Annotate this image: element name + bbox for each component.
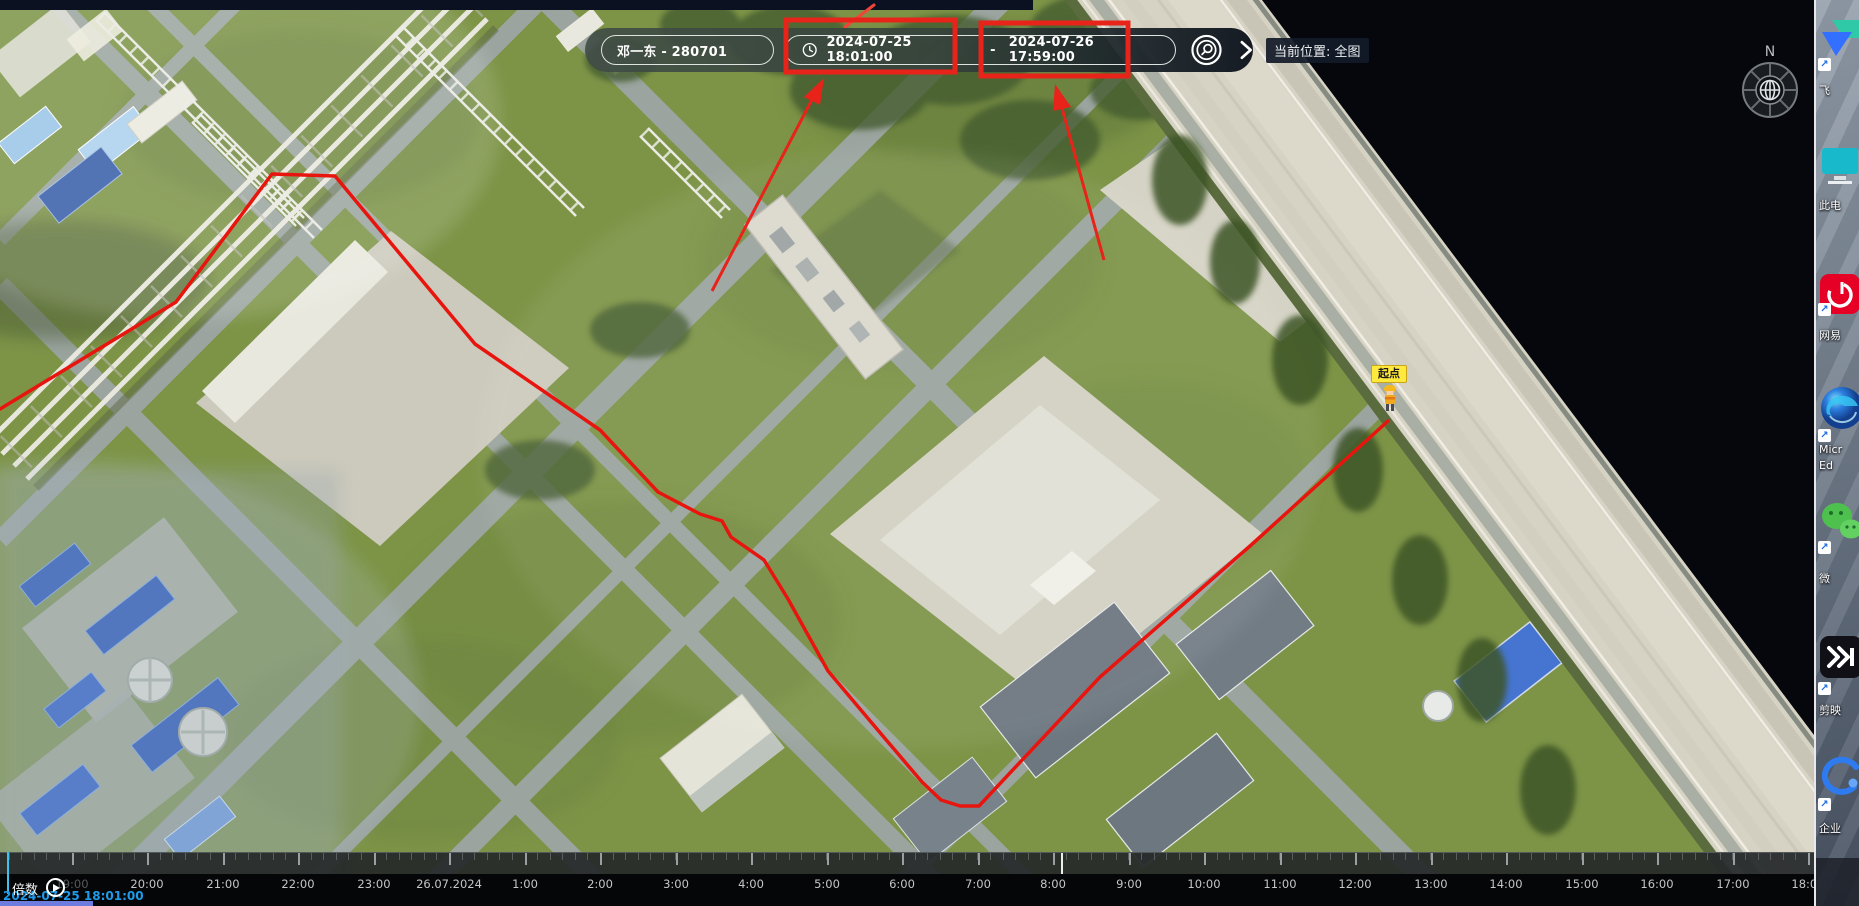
minor-tick xyxy=(1544,853,1545,860)
minor-tick xyxy=(1632,853,1633,860)
minor-tick xyxy=(625,853,626,860)
minor-tick xyxy=(122,853,123,860)
minor-tick xyxy=(915,853,916,860)
search-button[interactable] xyxy=(1190,33,1223,67)
timeline-label: 16:00 xyxy=(1640,877,1673,891)
timeline-label: 2:00 xyxy=(587,877,613,891)
minor-tick xyxy=(1670,853,1671,860)
hour-tick xyxy=(1204,853,1206,865)
minor-tick xyxy=(160,853,161,860)
minor-tick xyxy=(59,853,60,860)
hour-tick xyxy=(1053,853,1055,865)
minor-tick xyxy=(1254,853,1255,860)
minor-tick xyxy=(424,853,425,860)
hour-tick xyxy=(1733,853,1735,865)
minor-tick xyxy=(97,853,98,860)
minor-tick xyxy=(1003,853,1004,860)
minor-tick xyxy=(638,853,639,860)
minor-tick xyxy=(1179,853,1180,860)
hour-tick xyxy=(902,853,904,865)
minor-tick xyxy=(726,853,727,860)
minor-tick xyxy=(1393,853,1394,860)
timeline-label: 17:00 xyxy=(1716,877,1749,891)
minor-tick xyxy=(1028,853,1029,860)
minor-tick xyxy=(1468,853,1469,860)
start-point-marker: 起点 xyxy=(1371,365,1407,383)
timeline-label: 7:00 xyxy=(965,877,991,891)
minor-tick xyxy=(1103,853,1104,860)
minor-tick xyxy=(1569,853,1570,860)
hour-tick xyxy=(72,853,74,865)
minor-tick xyxy=(940,853,941,860)
minor-tick xyxy=(1166,853,1167,860)
minor-tick xyxy=(965,853,966,860)
minor-tick xyxy=(1091,853,1092,860)
minor-tick xyxy=(1556,853,1557,860)
minor-tick xyxy=(801,853,802,860)
shortcut-arrow-icon: ↗ xyxy=(1818,798,1831,811)
timeline-label: 11:00 xyxy=(1263,877,1296,891)
minor-tick xyxy=(1443,853,1444,860)
minor-tick xyxy=(348,853,349,860)
timeline-label: 1:00 xyxy=(512,877,538,891)
hour-tick xyxy=(1431,853,1433,865)
desktop-icon-microsoft-edge[interactable] xyxy=(1820,386,1859,434)
minor-tick xyxy=(1405,853,1406,860)
hour-tick xyxy=(449,853,451,865)
minor-tick xyxy=(1695,853,1696,860)
minor-tick xyxy=(1305,853,1306,860)
hour-tick xyxy=(147,853,149,865)
app-screen: N 邓一东 - 280701 xyxy=(0,0,1859,906)
hour-tick xyxy=(676,853,678,865)
minor-tick xyxy=(550,853,551,860)
minor-tick xyxy=(487,853,488,860)
minor-tick xyxy=(877,853,878,860)
hour-tick xyxy=(1657,853,1659,865)
hour-tick xyxy=(600,853,602,865)
progress-bar[interactable] xyxy=(0,901,93,906)
hour-tick xyxy=(298,853,300,865)
hour-tick xyxy=(374,853,376,865)
minor-tick xyxy=(474,853,475,860)
minor-tick xyxy=(386,853,387,860)
timeline-label: 23:00 xyxy=(357,877,390,891)
minor-tick xyxy=(1720,853,1721,860)
worker-figure xyxy=(1381,384,1399,414)
shortcut-arrow-icon: ↗ xyxy=(1818,682,1831,695)
minor-tick xyxy=(134,853,135,860)
minor-tick xyxy=(172,853,173,860)
desktop-icon-this-pc[interactable] xyxy=(1820,146,1859,192)
timeline-playhead[interactable] xyxy=(7,852,9,894)
minor-tick xyxy=(248,853,249,860)
hour-tick xyxy=(1280,853,1282,865)
minor-tick xyxy=(1154,853,1155,860)
minor-tick xyxy=(260,853,261,860)
desktop-icon-label-line2: Ed xyxy=(1819,459,1859,472)
timeline-label: 5:00 xyxy=(814,877,840,891)
minor-tick xyxy=(285,853,286,860)
minor-tick xyxy=(1292,853,1293,860)
minor-tick xyxy=(109,853,110,860)
hour-tick xyxy=(1808,853,1810,865)
date-end[interactable]: 2024-07-26 17:59:00 xyxy=(1009,35,1160,65)
map-canvas[interactable]: N xyxy=(0,0,1814,906)
timeline-label: 22:00 xyxy=(281,877,314,891)
minor-tick xyxy=(1368,853,1369,860)
minor-tick xyxy=(1217,853,1218,860)
timeline-label: 9:00 xyxy=(1116,877,1142,891)
minor-tick xyxy=(701,853,702,860)
shortcut-arrow-icon: ↗ xyxy=(1818,303,1831,316)
minor-tick xyxy=(235,853,236,860)
minor-tick xyxy=(1317,853,1318,860)
desktop-icon-label: 此电 xyxy=(1819,197,1859,213)
clock-icon xyxy=(802,42,817,58)
minor-tick xyxy=(21,853,22,860)
timeline: 19:0020:0021:0022:0023:0026.07.20241:002… xyxy=(0,852,1814,906)
minor-tick xyxy=(46,853,47,860)
timeline-label: 13:00 xyxy=(1414,877,1447,891)
minor-tick xyxy=(587,853,588,860)
minor-tick xyxy=(323,853,324,860)
minor-tick xyxy=(1481,853,1482,860)
timeline-label: 8:00 xyxy=(1040,877,1066,891)
minor-tick xyxy=(34,853,35,860)
hour-tick xyxy=(978,853,980,865)
minor-tick xyxy=(1418,853,1419,860)
minor-tick xyxy=(839,853,840,860)
timeline-label: 3:00 xyxy=(663,877,689,891)
minor-tick xyxy=(864,853,865,860)
timeline-label: 15:00 xyxy=(1565,877,1598,891)
date-separator: - xyxy=(990,43,996,58)
minor-tick xyxy=(1607,853,1608,860)
minor-tick xyxy=(1745,853,1746,860)
minor-tick xyxy=(1116,853,1117,860)
shortcut-arrow-icon: ↗ xyxy=(1818,429,1831,442)
minor-tick xyxy=(1456,853,1457,860)
expand-chevron-button[interactable] xyxy=(1239,40,1253,60)
minor-tick xyxy=(1644,853,1645,860)
desktop-icon-capcut[interactable] xyxy=(1820,636,1859,682)
hour-tick xyxy=(1129,853,1131,865)
minor-tick xyxy=(1066,853,1067,860)
minor-tick xyxy=(436,853,437,860)
top-strip xyxy=(0,0,1033,10)
timeline-label: 10:00 xyxy=(1187,877,1220,891)
current-location-badge: 当前位置: 全图 xyxy=(1266,38,1369,63)
minor-tick xyxy=(185,853,186,860)
minor-tick xyxy=(361,853,362,860)
minor-tick xyxy=(738,853,739,860)
minor-tick xyxy=(562,853,563,860)
timeline-label: 6:00 xyxy=(889,877,915,891)
minor-tick xyxy=(1783,853,1784,860)
minor-tick xyxy=(1519,853,1520,860)
minor-tick xyxy=(399,853,400,860)
desktop-icon-label: 剪映 xyxy=(1819,702,1859,718)
desktop-icon-label: 企业 xyxy=(1819,820,1859,836)
date-start[interactable]: 2024-07-25 18:01:00 xyxy=(826,35,977,65)
minor-tick xyxy=(1040,853,1041,860)
timeline-label: 12:00 xyxy=(1338,877,1371,891)
minor-tick xyxy=(1191,853,1192,860)
timeline-scrubber[interactable] xyxy=(0,852,1814,874)
desktop-icon-label: Micr xyxy=(1819,443,1859,456)
globe-icon xyxy=(1761,81,1780,100)
minor-tick xyxy=(613,853,614,860)
desktop-icon-wecom[interactable] xyxy=(1820,753,1859,803)
minor-tick xyxy=(1015,853,1016,860)
minor-tick xyxy=(411,853,412,860)
minor-tick xyxy=(688,853,689,860)
search-toolbar: 邓一东 - 280701 2024-07-25 18:01:00 - 2024-… xyxy=(585,28,1253,72)
date-range-field[interactable]: 2024-07-25 18:01:00 - 2024-07-26 17:59:0… xyxy=(785,35,1176,65)
minor-tick xyxy=(852,853,853,860)
minor-tick xyxy=(197,853,198,860)
taskbar-fragment[interactable] xyxy=(1816,858,1859,906)
minor-tick xyxy=(1330,853,1331,860)
hour-tick xyxy=(1582,853,1584,865)
minor-tick xyxy=(1380,853,1381,860)
shortcut-arrow-icon: ↗ xyxy=(1818,541,1831,554)
shortcut-arrow-icon: ↗ xyxy=(1818,58,1831,71)
speed-label: 倍数 xyxy=(12,879,38,898)
minor-tick xyxy=(1141,853,1142,860)
minor-tick xyxy=(663,853,664,860)
minor-tick xyxy=(1758,853,1759,860)
minor-tick xyxy=(1770,853,1771,860)
hour-tick xyxy=(223,853,225,865)
minor-tick xyxy=(1795,853,1796,860)
minor-tick xyxy=(1078,853,1079,860)
windows-desktop-strip: ↗ 飞 此电 ↗ 网易 ↗ Micr xyxy=(1814,0,1859,906)
minor-tick xyxy=(1594,853,1595,860)
timeline-label: 4:00 xyxy=(738,877,764,891)
minor-tick xyxy=(1242,853,1243,860)
minor-tick xyxy=(776,853,777,860)
minor-tick xyxy=(512,853,513,860)
minor-tick xyxy=(814,853,815,860)
hour-tick xyxy=(827,853,829,865)
hour-tick xyxy=(525,853,527,865)
hour-tick xyxy=(1355,853,1357,865)
timeline-label: 26.07.2024 xyxy=(416,877,482,891)
minor-tick xyxy=(1707,853,1708,860)
minor-tick xyxy=(1493,853,1494,860)
minor-tick xyxy=(952,853,953,860)
minor-tick xyxy=(336,853,337,860)
minor-tick xyxy=(1531,853,1532,860)
minor-tick xyxy=(789,853,790,860)
minor-tick xyxy=(927,853,928,860)
minor-tick xyxy=(311,853,312,860)
timeline-label: 21:00 xyxy=(206,877,239,891)
person-select[interactable]: 邓一东 - 280701 xyxy=(601,35,774,65)
desktop-icon-label: 飞 xyxy=(1819,82,1859,98)
hour-tick xyxy=(1506,853,1508,865)
minor-tick xyxy=(1267,853,1268,860)
hour-tick xyxy=(751,853,753,865)
timeline-label: 14:00 xyxy=(1489,877,1522,891)
desktop-icon-label: 微 xyxy=(1819,570,1859,586)
minor-tick xyxy=(990,853,991,860)
minor-tick xyxy=(575,853,576,860)
minor-tick xyxy=(84,853,85,860)
timeline-label: 18:00 xyxy=(1791,877,1814,891)
minor-tick xyxy=(537,853,538,860)
minor-tick xyxy=(1682,853,1683,860)
play-button[interactable] xyxy=(46,878,65,897)
minor-tick xyxy=(1342,853,1343,860)
minor-tick xyxy=(1229,853,1230,860)
minor-tick xyxy=(650,853,651,860)
minor-tick xyxy=(1619,853,1620,860)
compass-north-label: N xyxy=(1765,44,1775,60)
desktop-icon-label: 网易 xyxy=(1819,327,1859,343)
minor-tick xyxy=(889,853,890,860)
minor-tick xyxy=(462,853,463,860)
minor-tick xyxy=(764,853,765,860)
minor-tick xyxy=(273,853,274,860)
minor-tick xyxy=(210,853,211,860)
minor-tick xyxy=(713,853,714,860)
person-name: 邓一东 - 280701 xyxy=(617,41,727,60)
minor-tick xyxy=(499,853,500,860)
